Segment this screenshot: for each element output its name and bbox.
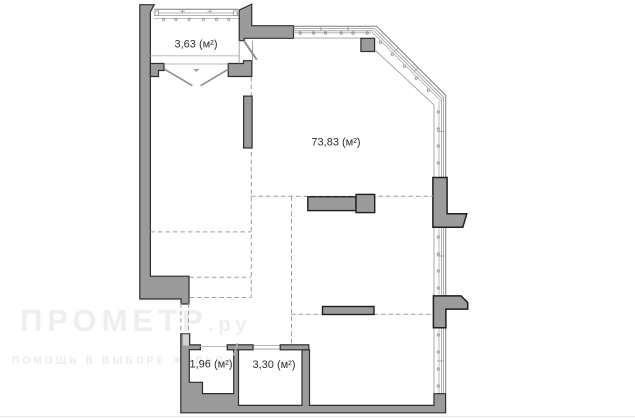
svg-text:73,83 (м²): 73,83 (м²): [311, 137, 360, 149]
svg-text:1,96 (м²): 1,96 (м²): [189, 359, 232, 371]
svg-text:3,30 (м²): 3,30 (м²): [252, 359, 295, 371]
svg-text:3,63 (м²): 3,63 (м²): [174, 39, 217, 51]
